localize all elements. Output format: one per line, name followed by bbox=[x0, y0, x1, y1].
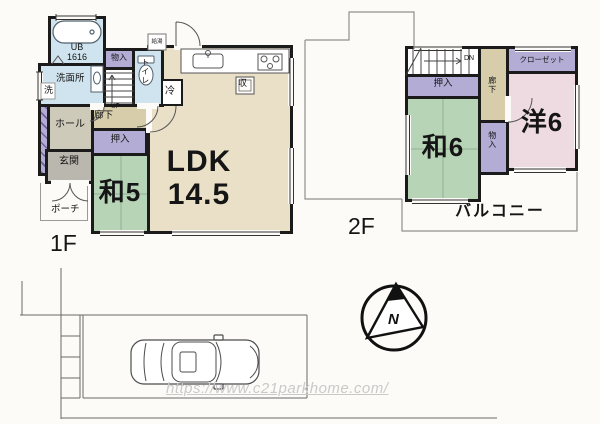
compass-n-label: N bbox=[388, 311, 400, 328]
first-floor-footprint-outline bbox=[305, 12, 414, 199]
washer-label: 洗 bbox=[44, 86, 53, 96]
tatami5-label: 和5 bbox=[95, 178, 145, 207]
water-heater-label: 給湯 bbox=[148, 39, 166, 45]
storage-2f-label: 物入 bbox=[487, 131, 496, 149]
watermark-url: https://www.c21parkhome.com/ bbox=[166, 380, 388, 397]
hall-label: ホール bbox=[55, 119, 85, 130]
corridor-1f-label: 廊下 bbox=[94, 111, 113, 121]
tatami6-label: 和6 bbox=[418, 133, 468, 162]
stairs-up-label: UP bbox=[111, 103, 120, 110]
western6-label: 洋6 bbox=[516, 108, 568, 137]
fridge-label: 冷 bbox=[165, 86, 175, 97]
kitchen-storage-label: 収 bbox=[238, 79, 247, 89]
compass-icon: N bbox=[362, 284, 426, 350]
ldk-label: LDK bbox=[151, 145, 247, 178]
toilet-label: トイレ bbox=[140, 58, 149, 85]
entrance-label: 玄関 bbox=[59, 156, 79, 167]
floor2-label: 2F bbox=[348, 214, 375, 239]
floor1-label: 1F bbox=[50, 231, 77, 256]
site-steps bbox=[61, 336, 80, 398]
closet-oshiire-2f-label: 押入 bbox=[413, 79, 473, 89]
corridor-2f-label: 廊下 bbox=[487, 76, 496, 94]
stairs-down-label: DN bbox=[464, 55, 474, 63]
washroom-label: 洗面所 bbox=[56, 74, 85, 84]
bath-size-label: 1616 bbox=[58, 53, 96, 63]
ldk-size-label: 14.5 bbox=[151, 178, 247, 211]
floor-plan-canvas: N UB 1616 洗面所 洗 物入 トイレ 給湯 冷 廊下 UP ホール 玄関… bbox=[0, 0, 600, 424]
wardrobe-label: クローゼット bbox=[507, 56, 577, 64]
porch-label: ポーチ bbox=[51, 205, 80, 215]
storage-1f-label: 物入 bbox=[103, 54, 135, 63]
balcony-label: バルコニー bbox=[442, 203, 558, 221]
closet-1f-label: 押入 bbox=[103, 135, 137, 145]
